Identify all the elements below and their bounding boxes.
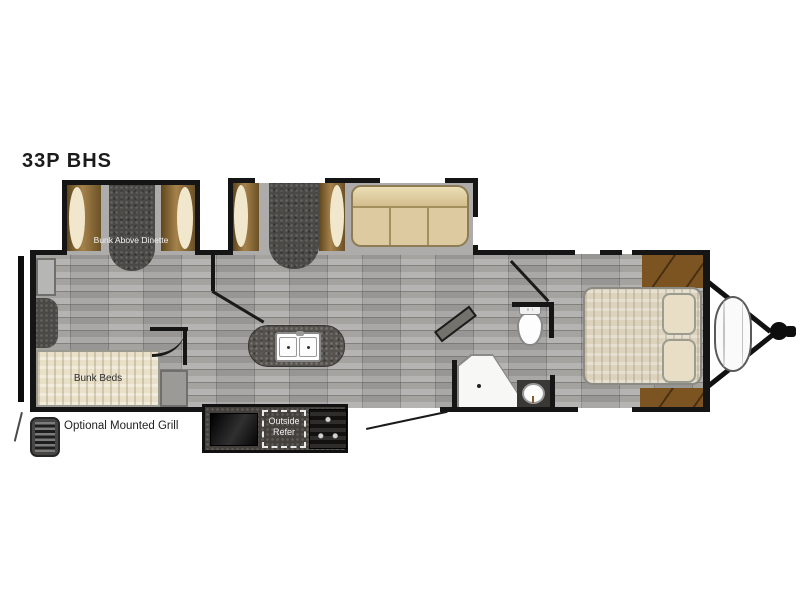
- bunk-step: [160, 370, 188, 407]
- queen-bed: [583, 287, 702, 385]
- rear-wardrobe: [34, 298, 58, 348]
- wall: [30, 407, 202, 412]
- mounted-grill-icon: [30, 417, 60, 457]
- wall: [30, 250, 66, 255]
- slideout-bunk-dinette: Bunk Above Dinette: [62, 180, 200, 255]
- bathroom-wall: [549, 302, 554, 338]
- bathroom-wall: [512, 302, 554, 307]
- slideout-dinette-sofa: [228, 178, 478, 255]
- sofa: [351, 185, 469, 247]
- hitch-tip: [785, 326, 796, 337]
- faucet-icon: [296, 331, 304, 336]
- dinette-cushion: [234, 185, 248, 247]
- bunk-above-dinette-label: Bunk Above Dinette: [67, 235, 195, 245]
- grill-slats: [35, 422, 55, 452]
- kitchen-island: [248, 325, 345, 367]
- rear-bumper: [18, 256, 24, 402]
- window: [473, 217, 478, 245]
- pillow: [662, 293, 696, 335]
- partition-wall: [211, 255, 215, 291]
- toilet-bowl: [517, 311, 543, 346]
- dinette-cushion: [330, 185, 344, 247]
- wall: [440, 407, 578, 412]
- outdoor-kitchen: Outside Refer: [202, 404, 348, 453]
- wall: [478, 250, 575, 255]
- window: [380, 178, 445, 183]
- double-sink-icon: [275, 332, 321, 362]
- front-wardrobe-bottom: [640, 388, 704, 407]
- floorplan-canvas: 33P BHS Bunk Beds: [0, 0, 800, 600]
- outside-refer-label: Outside Refer: [262, 410, 306, 448]
- toilet-icon: [515, 304, 545, 348]
- bunk-beds-label: Bunk Beds: [74, 373, 122, 384]
- dinette-table: [269, 183, 319, 269]
- grill-bracket: [14, 412, 32, 444]
- rear-wall: [30, 250, 36, 412]
- entry-door-swing: [366, 411, 448, 430]
- wall: [632, 250, 705, 255]
- bathroom-faucet-icon: [532, 396, 534, 403]
- rear-cabinet: [36, 258, 56, 296]
- bathroom-wall: [452, 360, 457, 410]
- outdoor-grill-icon: [309, 409, 347, 449]
- wall: [632, 407, 705, 412]
- outside-refrigerator-icon: [210, 413, 258, 446]
- front-wall: [703, 250, 710, 412]
- shower-drain: [477, 384, 481, 388]
- pillow: [662, 339, 696, 383]
- bathroom-wall: [550, 375, 555, 409]
- window: [255, 178, 325, 183]
- wall: [600, 250, 622, 255]
- bunk-beds: Bunk Beds: [36, 350, 160, 407]
- propane-tank-icon: [714, 296, 752, 372]
- optional-grill-label: Optional Mounted Grill: [64, 420, 178, 432]
- model-title: 33P BHS: [22, 150, 112, 173]
- bathroom-vanity: [517, 380, 550, 409]
- sink-basin-right: [299, 337, 317, 357]
- front-wardrobe-top: [642, 255, 704, 288]
- dinette-table: [109, 185, 155, 271]
- sink-basin-left: [279, 337, 297, 357]
